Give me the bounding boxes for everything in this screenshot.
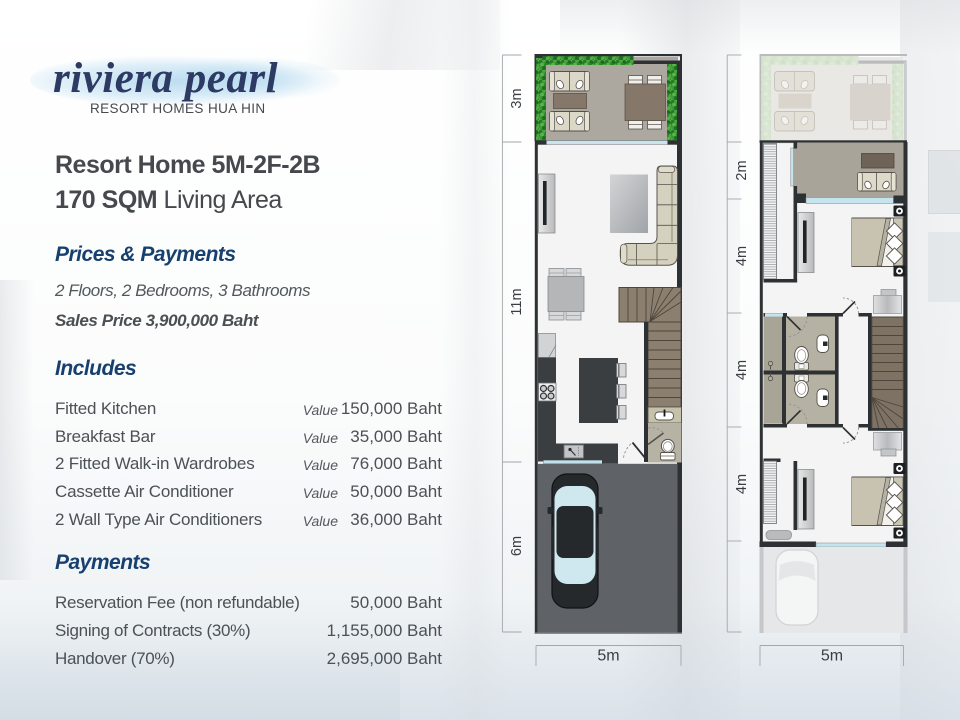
svg-text:4m: 4m (734, 474, 750, 494)
svg-text:3m: 3m (509, 88, 525, 108)
svg-text:6m: 6m (509, 536, 525, 556)
svg-text:11m: 11m (509, 288, 525, 315)
svg-text:5m: 5m (821, 648, 843, 665)
svg-text:4m: 4m (734, 246, 750, 266)
svg-text:4m: 4m (734, 360, 750, 380)
svg-text:5m: 5m (597, 648, 619, 665)
svg-text:2m: 2m (734, 160, 750, 180)
